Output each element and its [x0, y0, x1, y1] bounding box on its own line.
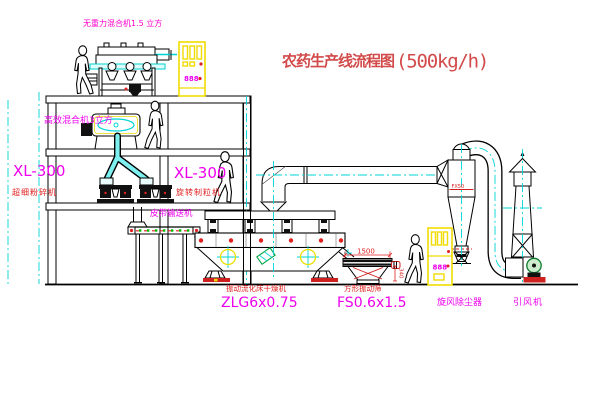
worker-figure-4 — [405, 235, 423, 283]
diagram-title: 农药生产线流程图 — [281, 52, 395, 70]
label-second-mixer: 高效混合机3立方 — [44, 114, 113, 126]
mixer-indicator-dot — [125, 88, 128, 91]
label-mill-name: 超细粉碎机 — [12, 187, 57, 197]
label-belt-conveyor: 皮带输送机 — [150, 208, 193, 219]
granulator-right — [137, 185, 174, 203]
control-cabinet-ground: 888 — [428, 228, 452, 285]
cabinet-ground-display: 888 — [433, 264, 448, 272]
control-cabinet-top: 888 — [179, 42, 205, 96]
high-efficiency-mixer — [81, 104, 140, 149]
label-granulator-name: 旋转制粒机 — [176, 187, 221, 197]
fluid-bed-dryer — [195, 202, 354, 282]
y-splitter-chute — [100, 136, 153, 185]
granulator-left — [97, 185, 134, 203]
process-flow-diagram: 888 — [0, 0, 600, 403]
label-cyclone: 旋风除尘器 — [437, 296, 482, 308]
label-dryer-name: 振动流化床干燥机 — [226, 283, 286, 293]
label-screen-model: FS0.6x1.5 — [337, 295, 407, 311]
dryer-spring-hangers — [208, 220, 329, 233]
cyclone-mark: FX50 — [452, 184, 465, 190]
worker-figure-1 — [75, 46, 93, 94]
label-fan: 引风机 — [513, 296, 543, 308]
dim-screen-outlet: 340 — [398, 268, 404, 279]
label-mill-model: XL-300 — [13, 162, 65, 180]
zero-gravity-mixer — [86, 43, 177, 96]
label-top-mixer: 无重力混合机1.5 立方 — [83, 18, 162, 28]
label-screen-name: 方形振动筛 — [344, 283, 382, 293]
label-dryer-model: ZLG6x0.75 — [221, 295, 298, 311]
cabinet-top-display: 888 — [184, 75, 199, 83]
label-granulator-model: XL-300 — [174, 164, 226, 182]
dim-screen-length: 1500 — [357, 248, 375, 256]
vibrating-screen — [343, 252, 400, 284]
diagram-title-capacity: (500kg/h) — [396, 51, 488, 73]
